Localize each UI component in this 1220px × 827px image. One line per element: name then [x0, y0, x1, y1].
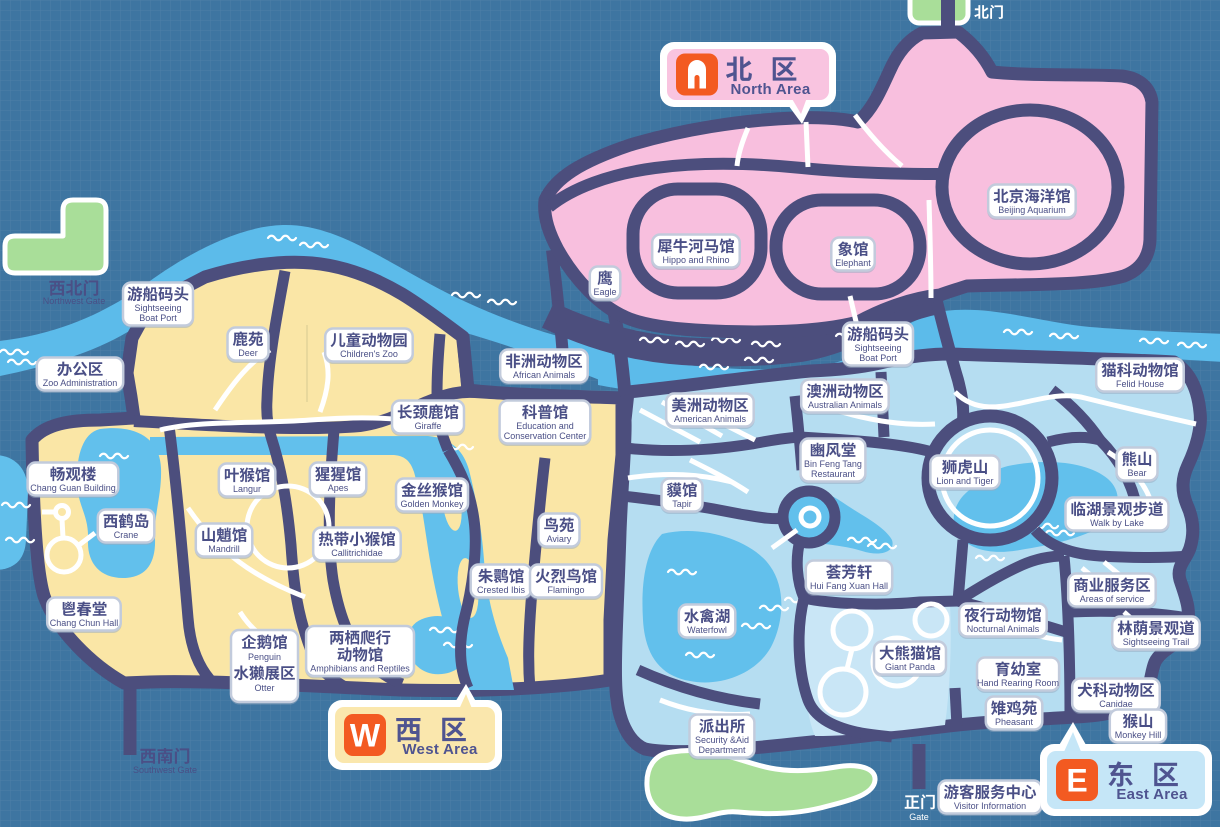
svg-text:North Area: North Area	[731, 81, 811, 98]
svg-text:African Animals: African Animals	[513, 370, 576, 380]
svg-text:Mandrill: Mandrill	[208, 544, 240, 554]
svg-text:West Area: West Area	[402, 741, 478, 758]
svg-text:Golden Monkey: Golden Monkey	[400, 499, 464, 509]
svg-text:Crested Ibis: Crested Ibis	[477, 585, 526, 595]
svg-text:Hand Rearing Room: Hand Rearing Room	[977, 678, 1059, 688]
svg-text:Areas of service: Areas of service	[1080, 594, 1145, 604]
svg-text:Hui Fang Xuan Hall: Hui Fang Xuan Hall	[810, 581, 888, 591]
svg-text:Australian Animals: Australian Animals	[808, 400, 883, 410]
svg-text:Deer: Deer	[238, 348, 258, 358]
svg-text:Langur: Langur	[233, 484, 261, 494]
svg-text:Walk by Lake: Walk by Lake	[1090, 518, 1144, 528]
svg-text:Beijing Aquarium: Beijing Aquarium	[998, 205, 1066, 215]
svg-text:Apes: Apes	[328, 483, 349, 493]
svg-text:W: W	[350, 718, 381, 754]
svg-text:Crane: Crane	[114, 530, 139, 540]
svg-text:Northwest Gate: Northwest Gate	[43, 296, 106, 306]
svg-text:Giant Panda: Giant Panda	[885, 662, 935, 672]
svg-text:Security &Aid: Security &Aid	[695, 735, 749, 745]
svg-text:Visitor Information: Visitor Information	[954, 801, 1026, 811]
svg-text:East Area: East Area	[1116, 786, 1188, 803]
svg-text:Boat Port: Boat Port	[859, 353, 897, 363]
svg-text:Sightseeing: Sightseeing	[854, 343, 901, 353]
svg-text:Flamingo: Flamingo	[547, 585, 584, 595]
svg-text:Zoo Administration: Zoo Administration	[43, 378, 118, 388]
svg-text:American Animals: American Animals	[674, 414, 747, 424]
svg-text:Elephant: Elephant	[835, 258, 871, 268]
svg-text:Lion and Tiger: Lion and Tiger	[936, 476, 993, 486]
svg-text:Callitrichidae: Callitrichidae	[331, 548, 383, 558]
svg-text:Gate: Gate	[909, 812, 929, 822]
svg-text:Restaurant: Restaurant	[811, 469, 856, 479]
svg-text:Amphibians and Reptiles: Amphibians and Reptiles	[310, 664, 410, 674]
svg-text:Felid House: Felid House	[1116, 379, 1164, 389]
svg-text:Canidae: Canidae	[1099, 699, 1133, 709]
svg-text:Penguin: Penguin	[248, 652, 281, 662]
svg-text:Pheasant: Pheasant	[995, 717, 1034, 727]
svg-text:Boat Port: Boat Port	[139, 313, 177, 323]
svg-text:Waterfowl: Waterfowl	[687, 625, 727, 635]
svg-text:Chang Guan Building: Chang Guan Building	[30, 483, 116, 493]
svg-text:Southwest Gate: Southwest Gate	[133, 765, 197, 775]
svg-text:E: E	[1066, 763, 1087, 799]
svg-text:Bin Feng Tang: Bin Feng Tang	[804, 459, 862, 469]
svg-text:Bear: Bear	[1127, 468, 1146, 478]
svg-text:Tapir: Tapir	[672, 499, 692, 509]
svg-text:Sightseeing: Sightseeing	[134, 303, 181, 313]
svg-text:Eagle: Eagle	[593, 287, 616, 297]
svg-text:Giraffe: Giraffe	[415, 421, 442, 431]
svg-text:Chang Chun Hall: Chang Chun Hall	[50, 618, 119, 628]
svg-text:Otter: Otter	[254, 683, 274, 693]
svg-text:Conservation Center: Conservation Center	[504, 431, 587, 441]
svg-text:Education and: Education and	[516, 421, 574, 431]
svg-text:Aviary: Aviary	[547, 534, 572, 544]
svg-text:Department: Department	[698, 745, 746, 755]
svg-text:Sightseeing Trail: Sightseeing Trail	[1123, 637, 1190, 647]
svg-text:Nocturnal Animals: Nocturnal Animals	[967, 624, 1040, 634]
svg-text:Hippo and Rhino: Hippo and Rhino	[662, 255, 729, 265]
svg-text:Children's Zoo: Children's Zoo	[340, 349, 398, 359]
svg-text:Monkey Hill: Monkey Hill	[1115, 730, 1162, 740]
